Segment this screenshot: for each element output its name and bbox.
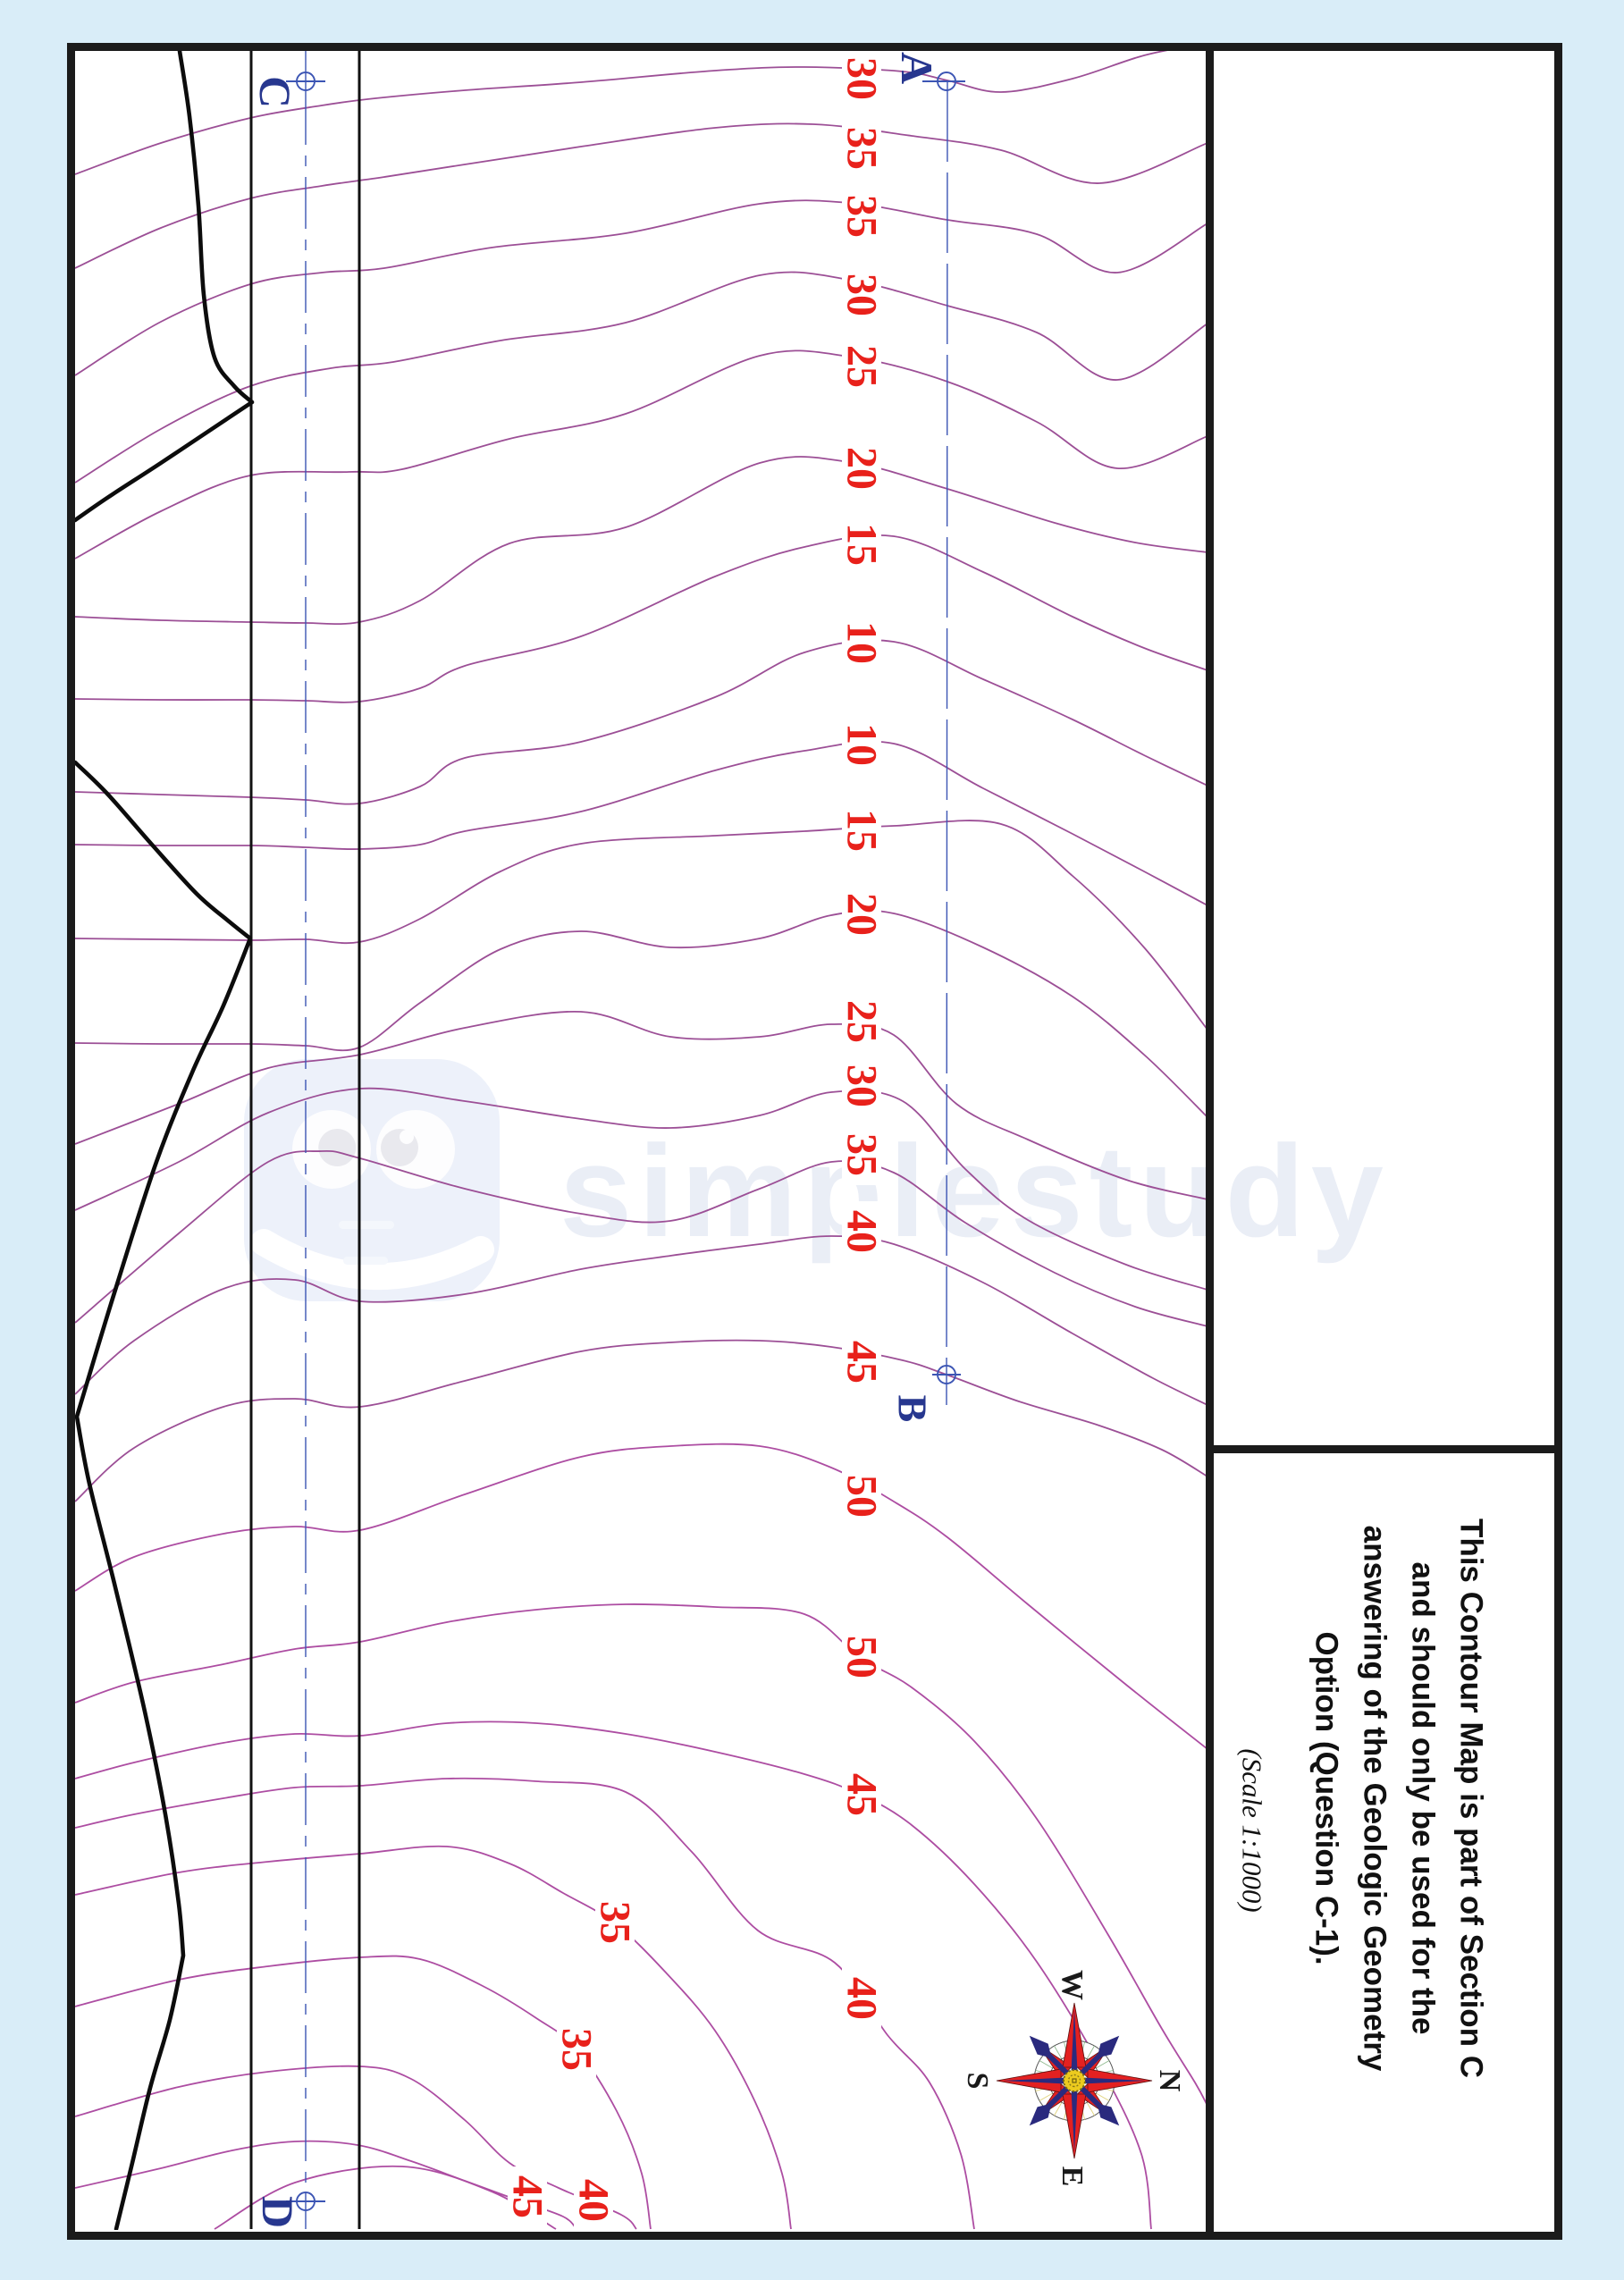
- svg-text:W: W: [1056, 1970, 1089, 2000]
- svg-text:A: A: [892, 52, 942, 84]
- svg-text:20: 20: [838, 447, 886, 490]
- svg-text:C: C: [250, 76, 300, 108]
- svg-text:10: 10: [838, 621, 886, 664]
- svg-text:15: 15: [838, 809, 886, 852]
- svg-text:20: 20: [838, 893, 886, 936]
- svg-text:N: N: [1153, 2070, 1186, 2092]
- svg-text:B: B: [890, 1395, 936, 1423]
- svg-text:35: 35: [592, 1901, 639, 1944]
- svg-text:Option (Question C-1).: Option (Question C-1).: [1309, 1631, 1344, 1965]
- svg-text:E: E: [1056, 2166, 1089, 2187]
- svg-text:answering of the Geologic Geom: answering of the Geologic Geometry: [1358, 1526, 1393, 2072]
- svg-text:50: 50: [838, 1636, 886, 1678]
- svg-text:50: 50: [838, 1475, 886, 1518]
- svg-text:35: 35: [838, 127, 886, 170]
- svg-text:(Scale 1:1000): (Scale 1:1000): [1237, 1748, 1268, 1912]
- svg-text:25: 25: [838, 345, 886, 388]
- svg-text:This Contour Map is part of Se: This Contour Map is part of Section C: [1454, 1519, 1489, 2078]
- svg-text:25: 25: [838, 1000, 886, 1043]
- svg-text:40: 40: [570, 2179, 618, 2222]
- svg-text:and should only be used for th: and should only be used for the: [1406, 1562, 1441, 2035]
- svg-text:45: 45: [504, 2175, 551, 2218]
- svg-text:35: 35: [838, 1133, 886, 1176]
- svg-text:D: D: [253, 2196, 303, 2228]
- svg-text:15: 15: [838, 523, 886, 566]
- svg-text:simplestudy: simplestudy: [560, 1118, 1390, 1264]
- svg-text:30: 30: [838, 1064, 886, 1107]
- svg-text:S: S: [961, 2073, 994, 2090]
- svg-text:45: 45: [838, 1341, 886, 1384]
- svg-text:35: 35: [838, 195, 886, 238]
- svg-text:40: 40: [838, 1210, 886, 1253]
- svg-text:35: 35: [553, 2028, 601, 2071]
- svg-text:40: 40: [838, 1977, 886, 2020]
- svg-text:10: 10: [838, 723, 886, 766]
- svg-text:30: 30: [838, 273, 886, 316]
- svg-text:30: 30: [838, 57, 886, 100]
- svg-text:45: 45: [838, 1773, 886, 1816]
